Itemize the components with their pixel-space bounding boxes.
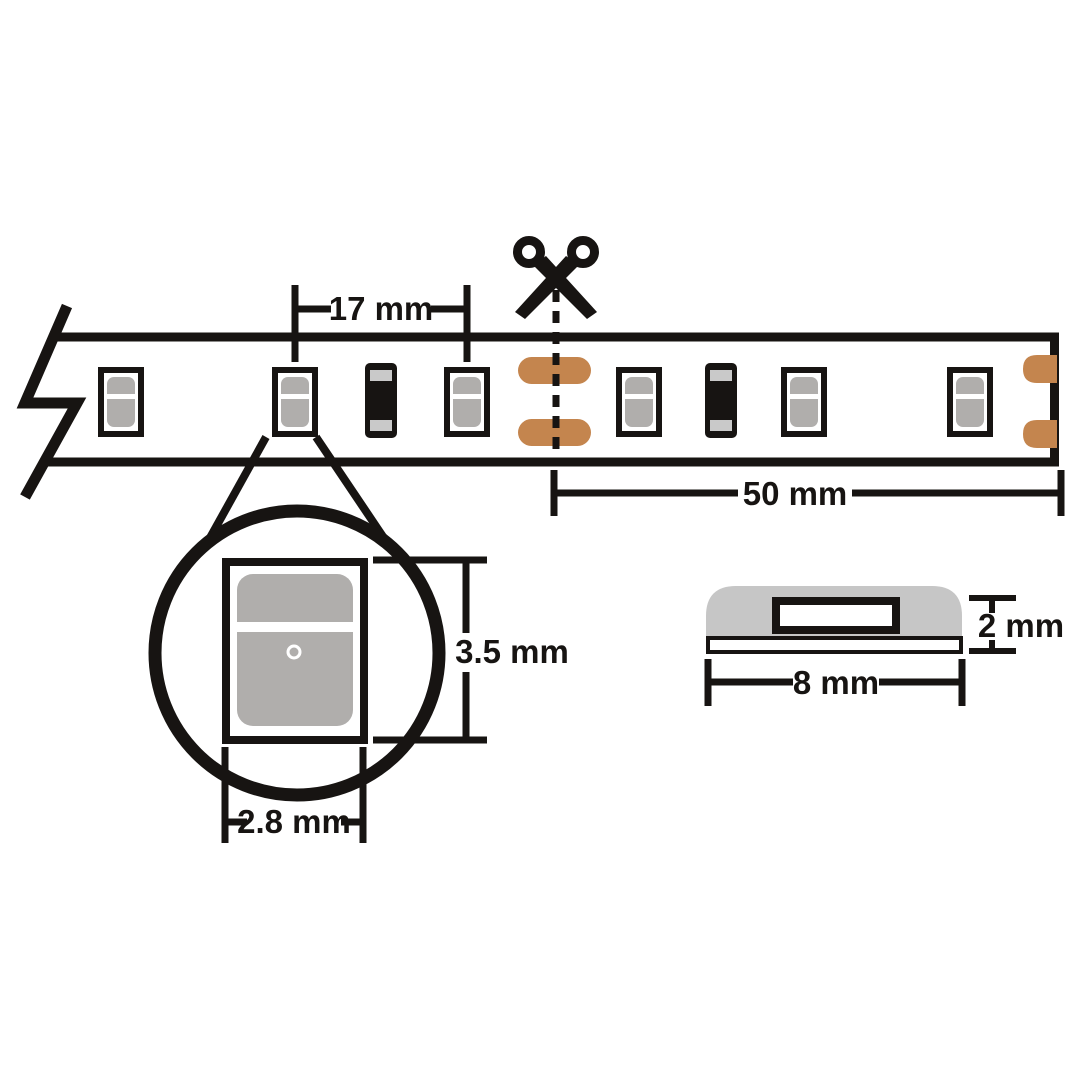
- led-pitch-label: 17 mm: [329, 290, 434, 327]
- dimension-led-pitch: 17 mm: [295, 285, 467, 362]
- package-width-label: 2.8 mm: [237, 803, 351, 840]
- led-component-3: [447, 370, 487, 434]
- cross-section-led: [776, 601, 896, 630]
- pcb-base: [708, 638, 961, 652]
- cut-length-label: 50 mm: [743, 475, 848, 512]
- scissors-icon: [515, 241, 597, 320]
- dimension-strip-thickness: 2 mm: [969, 598, 1064, 651]
- led-component-2: [275, 370, 315, 434]
- resistor-component-2: [705, 363, 737, 438]
- strip-top-view: [25, 241, 1057, 498]
- solder-pad: [1023, 420, 1057, 448]
- package-height-label: 3.5 mm: [455, 633, 569, 670]
- strip-width-label: 8 mm: [793, 664, 879, 701]
- led-component-4: [619, 370, 659, 434]
- led-component-6: [950, 370, 990, 434]
- strip-thickness-label: 2 mm: [978, 607, 1064, 644]
- dimension-strip-width: 8 mm: [708, 659, 962, 706]
- resistor-component-1: [365, 363, 397, 438]
- solder-pad: [1023, 355, 1057, 383]
- dimension-cut-length: 50 mm: [554, 470, 1061, 516]
- led-component-1: [101, 370, 141, 434]
- strip-cross-section: [706, 586, 962, 652]
- led-strip-dimension-diagram: 17 mm 50 mm 3.5 mm 2.8 mm: [0, 0, 1080, 1080]
- magnified-led-package: [226, 562, 364, 740]
- led-component-5: [784, 370, 824, 434]
